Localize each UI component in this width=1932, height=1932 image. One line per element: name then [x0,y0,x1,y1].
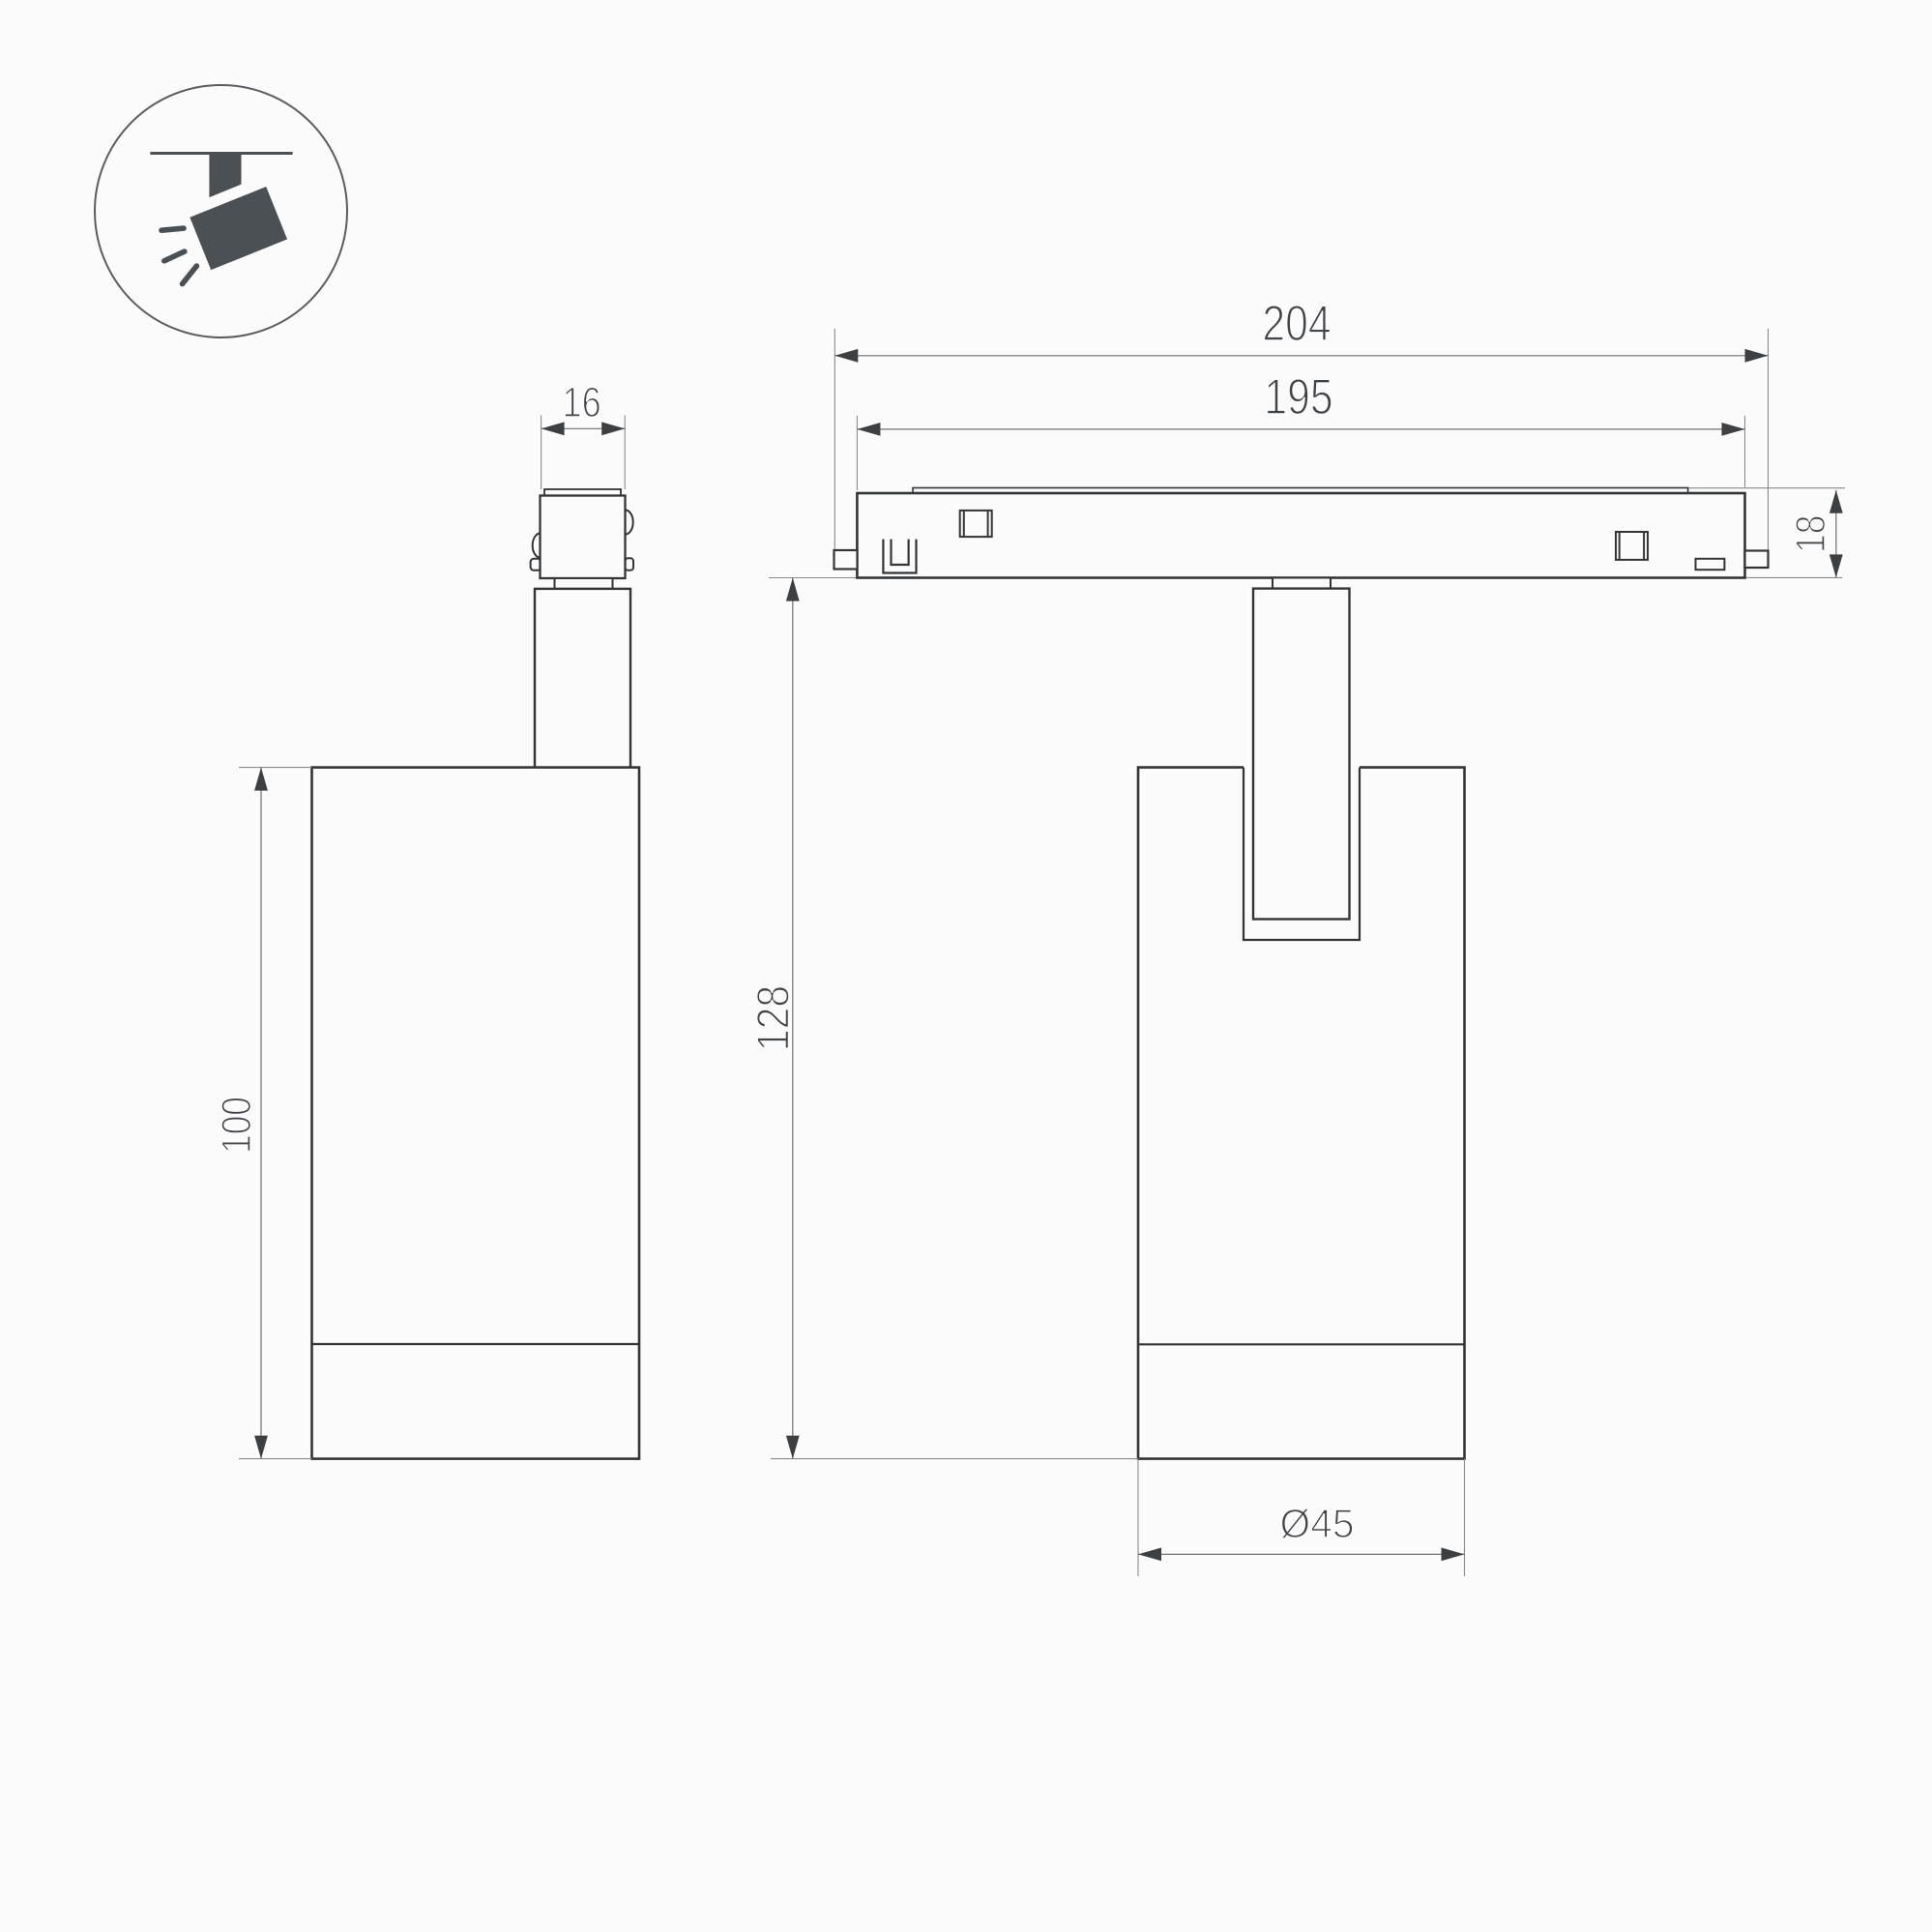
svg-text:128: 128 [746,985,798,1051]
svg-text:Ø45: Ø45 [1279,1501,1354,1546]
svg-text:100: 100 [214,1097,260,1154]
svg-text:18: 18 [1788,515,1834,553]
svg-text:195: 195 [1264,369,1332,425]
svg-text:204: 204 [1262,296,1331,352]
svg-text:16: 16 [563,379,601,426]
